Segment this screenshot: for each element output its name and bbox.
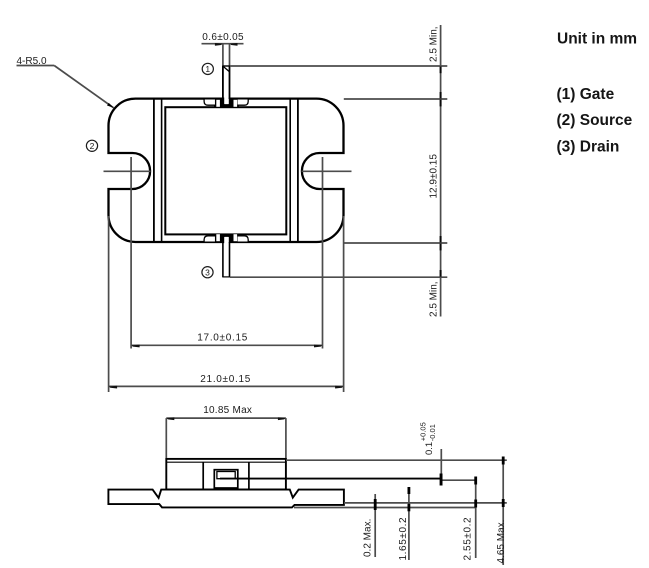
- svg-text:0.6±0.05: 0.6±0.05: [202, 32, 244, 43]
- svg-text:4.65 Max.: 4.65 Max.: [496, 520, 507, 564]
- svg-text:-0.01: -0.01: [428, 424, 437, 441]
- svg-text:Unit in mm: Unit in mm: [557, 31, 637, 48]
- svg-text:2: 2: [90, 141, 95, 151]
- svg-text:2.5 Min,: 2.5 Min,: [429, 26, 440, 62]
- svg-text:1.65±0.2: 1.65±0.2: [398, 517, 409, 561]
- svg-text:1: 1: [205, 64, 210, 74]
- svg-text:21.0±0.15: 21.0±0.15: [200, 374, 251, 385]
- svg-text:(3) Drain: (3) Drain: [557, 139, 620, 156]
- svg-text:12.9±0.15: 12.9±0.15: [428, 154, 439, 199]
- svg-text:0.1: 0.1: [424, 442, 435, 455]
- svg-text:(1) Gate: (1) Gate: [557, 86, 615, 103]
- svg-text:0.2 Max.: 0.2 Max.: [363, 519, 374, 557]
- svg-text:2.5 Min,: 2.5 Min,: [429, 281, 440, 317]
- svg-text:+0.05: +0.05: [419, 422, 428, 441]
- svg-text:10.85 Max: 10.85 Max: [203, 405, 252, 416]
- svg-text:2.55±0.2: 2.55±0.2: [463, 517, 474, 561]
- svg-text:(2) Source: (2) Source: [557, 112, 633, 129]
- svg-text:17.0±0.15: 17.0±0.15: [197, 333, 248, 344]
- svg-text:3: 3: [205, 267, 210, 277]
